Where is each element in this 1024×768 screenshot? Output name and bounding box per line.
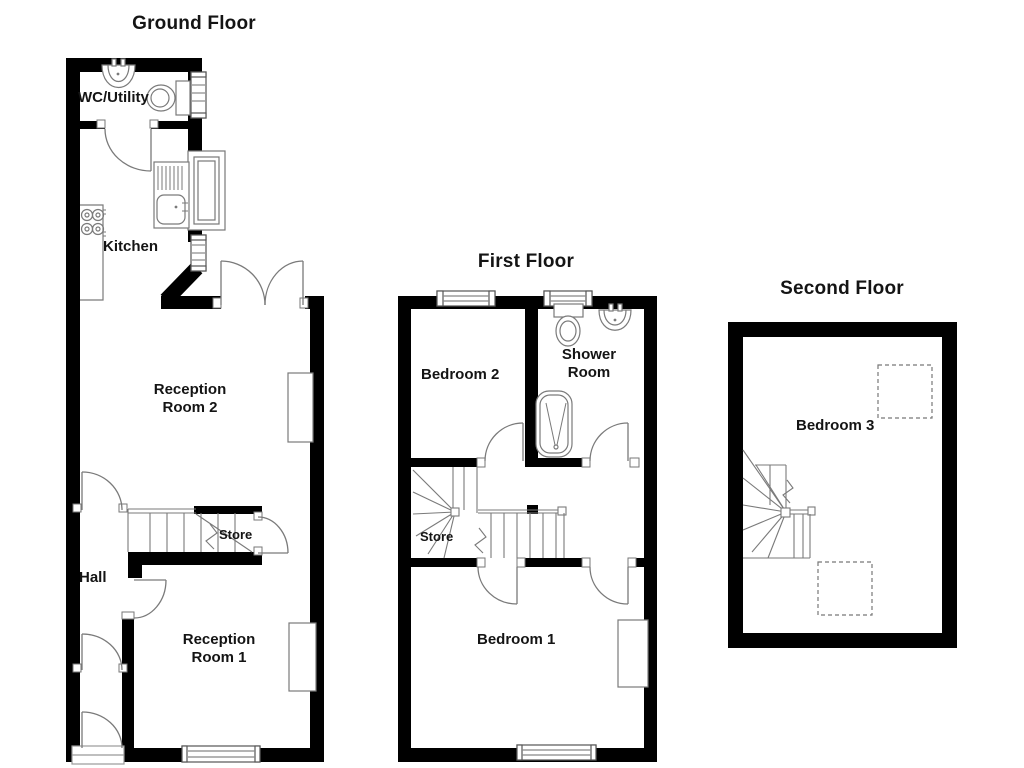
room-label-reception-1: Reception Room 1 (174, 631, 264, 667)
reception2-hall-door-icon (82, 472, 122, 510)
first-floor-title: First Floor (446, 253, 606, 271)
ground-floor-title: Ground Floor (114, 15, 274, 33)
room-label-reception-2: Reception Room 2 (145, 381, 235, 417)
reception1-window-icon (182, 746, 260, 762)
room-label-kitchen: Kitchen (103, 238, 158, 256)
room-label-wc-utility: WC/Utility (78, 89, 149, 107)
kitchen-sink-icon (154, 162, 189, 228)
bedroom2-window-icon (437, 291, 495, 306)
room-label-store-first: Store (420, 528, 453, 546)
second-floor-plan (728, 322, 957, 648)
room-label-hall: Hall (79, 569, 107, 587)
ground-angled-wall (166, 268, 197, 300)
wc-door-icon (105, 129, 151, 171)
bedroom1-window-icon (517, 745, 596, 760)
restricted-height-area-top (878, 365, 932, 418)
room-label-store-ground: Store (219, 526, 252, 544)
front-door-threshold (72, 746, 124, 764)
hall-lobby-door-icon (82, 634, 122, 670)
second-dashed-areas (818, 365, 932, 615)
bedroom1-wardrobe (618, 620, 648, 687)
second-stairs-icon (743, 450, 815, 558)
room-label-bedroom-1: Bedroom 1 (477, 631, 555, 649)
room-label-shower-room: Shower Room (553, 346, 625, 382)
reception1-door-icon (134, 580, 166, 618)
kitchen-bay-window-icon (188, 151, 225, 230)
shower-room-door-icon (590, 423, 628, 461)
bedroom2-door-icon (485, 423, 523, 461)
shower-icon (536, 391, 572, 457)
wc-window-icon (191, 72, 206, 118)
hob-icon (82, 210, 107, 237)
french-doors-icon (221, 261, 303, 305)
room-label-bedroom-3: Bedroom 3 (796, 417, 874, 435)
front-door-icon (82, 712, 122, 748)
bedroom1-door-right-icon (590, 567, 628, 604)
restricted-height-area-bottom (818, 562, 872, 615)
second-walls (728, 322, 957, 648)
bedroom1-door-left-icon (478, 567, 517, 604)
floorplan-canvas: Ground Floor First Floor Second Floor WC… (0, 0, 1024, 768)
wc-toilet-icon (147, 81, 190, 115)
reception1-chimney-breast (289, 623, 316, 691)
room-label-bedroom-2: Bedroom 2 (421, 366, 499, 384)
ff-toilet-icon (554, 304, 583, 346)
kitchen-window-icon (191, 235, 206, 271)
reception2-chimney-breast (288, 373, 313, 442)
second-floor-title: Second Floor (762, 280, 922, 298)
